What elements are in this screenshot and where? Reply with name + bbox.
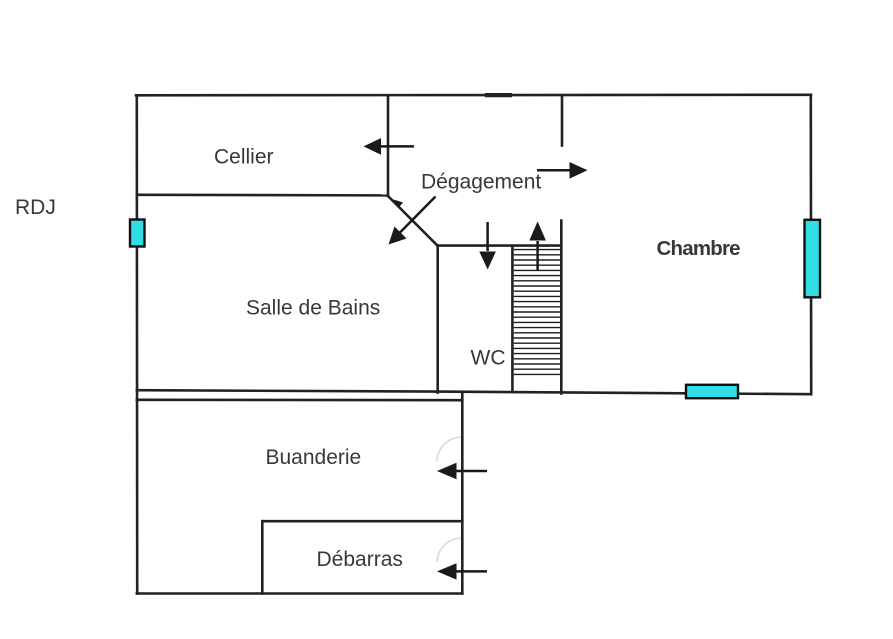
svg-text:Chambre: Chambre <box>657 237 741 260</box>
svg-text:Salle de Bains: Salle de Bains <box>246 297 380 320</box>
svg-text:Débarras: Débarras <box>317 548 403 571</box>
svg-text:Dégagement: Dégagement <box>421 171 541 194</box>
svg-text:WC: WC <box>471 347 506 370</box>
svg-text:Buanderie: Buanderie <box>266 446 362 469</box>
svg-text:RDJ: RDJ <box>15 196 56 219</box>
svg-text:Cellier: Cellier <box>214 146 274 169</box>
